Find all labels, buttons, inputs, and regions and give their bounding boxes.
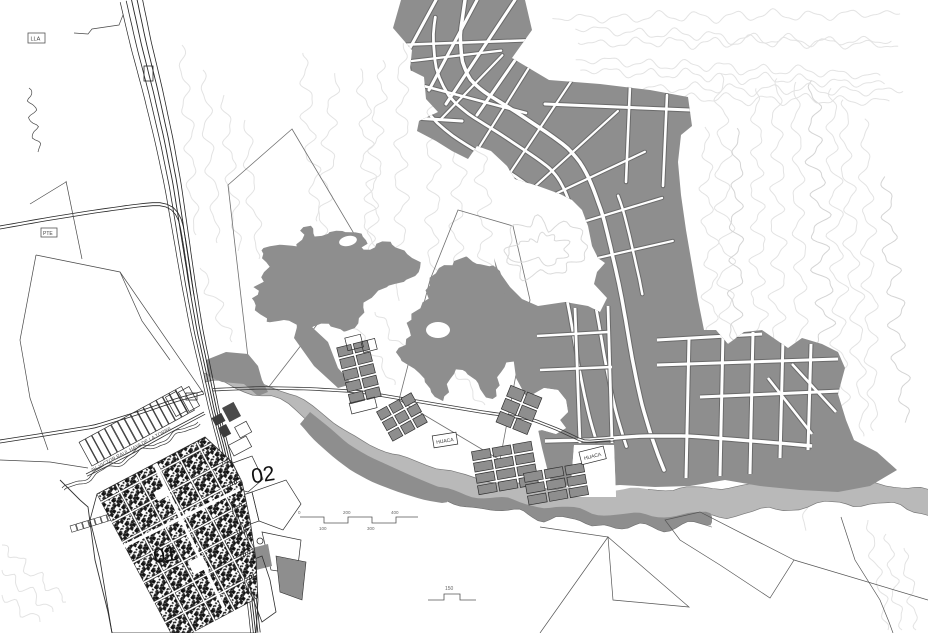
svg-text:150: 150 (445, 586, 454, 592)
svg-text:300: 300 (367, 526, 375, 531)
svg-text:200: 200 (343, 510, 351, 515)
svg-text:02: 02 (250, 462, 277, 488)
svg-text:LLA: LLA (31, 37, 41, 43)
svg-text:400: 400 (391, 510, 399, 515)
svg-text:100: 100 (319, 526, 327, 531)
svg-text:01: 01 (152, 542, 179, 568)
svg-text:PTE: PTE (43, 231, 53, 237)
